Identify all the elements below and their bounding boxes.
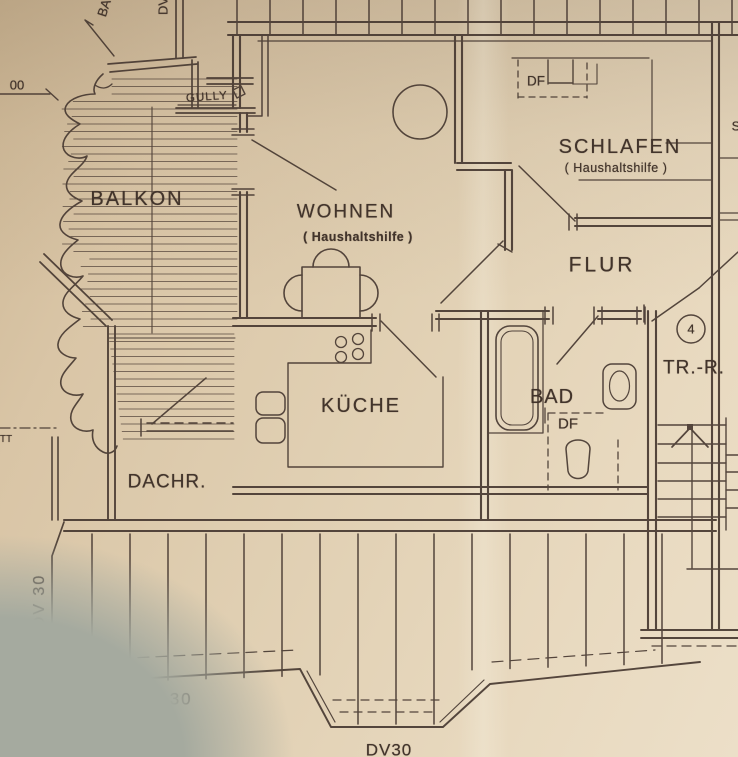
room-label-flur: FLUR [569, 255, 636, 276]
room-label-dachraum: DACHR. [128, 473, 207, 492]
room-sublabel-schlafen: ( Haushaltshilfe ) [565, 162, 668, 175]
round-table [393, 85, 447, 139]
sink-basin-1 [256, 392, 285, 415]
floor-plan: BALKON WOHNEN ( Haushaltshilfe ) SCHLAFE… [0, 0, 738, 757]
edge-label-dv: DV [157, 0, 170, 15]
room-label-wohnen: WOHNEN [297, 203, 396, 222]
dim-00-line [0, 89, 58, 100]
bathtub [496, 326, 538, 430]
staircase [658, 418, 738, 569]
stairwell-bottom-walls [641, 630, 738, 646]
rooflight-label-schlafen: DF [527, 74, 545, 88]
dv30-label-dormer: DV30 [366, 742, 413, 757]
room-label-bad: BAD [530, 387, 574, 407]
room-label-schlafen: SCHLAFEN [559, 137, 682, 157]
room-label-treppenraum: TR.-R. [663, 359, 725, 378]
plan-linework [0, 0, 738, 757]
balcony-hatching [62, 79, 237, 439]
edge-label-tt: TT [0, 435, 12, 445]
wohnen-left-wall [240, 113, 247, 318]
room-label-balkon: BALKON [90, 189, 183, 209]
exterior-walls [64, 22, 738, 630]
toilet [566, 440, 590, 479]
floor-plan-photo: BALKON WOHNEN ( Haushaltshilfe ) SCHLAFE… [0, 0, 738, 757]
balcony-dim-lines [108, 107, 235, 338]
room-sublabel-wohnen: ( Haushaltshilfe ) [303, 231, 413, 244]
dv30-label-bottom: DV 30 [135, 691, 192, 708]
right-edge-stubs [719, 158, 738, 220]
top-wall-hatch-ticks [237, 0, 732, 35]
edge-label-s: S [732, 120, 738, 133]
room-label-kueche: KÜCHE [321, 396, 401, 416]
dining-table-chairs [284, 249, 378, 318]
dv30-label-left: DV 30 [32, 574, 48, 628]
sink-basin-2 [256, 418, 285, 443]
balcony-edge-top [85, 0, 255, 113]
position-number: 4 [687, 323, 694, 336]
kitchen-door-leaf [381, 321, 436, 377]
balcony-door-leaf [252, 140, 336, 190]
dimension-label-00: 00 [10, 79, 24, 92]
wohnen-closet [247, 35, 268, 116]
rooflight-label-bad: DF [558, 417, 578, 432]
